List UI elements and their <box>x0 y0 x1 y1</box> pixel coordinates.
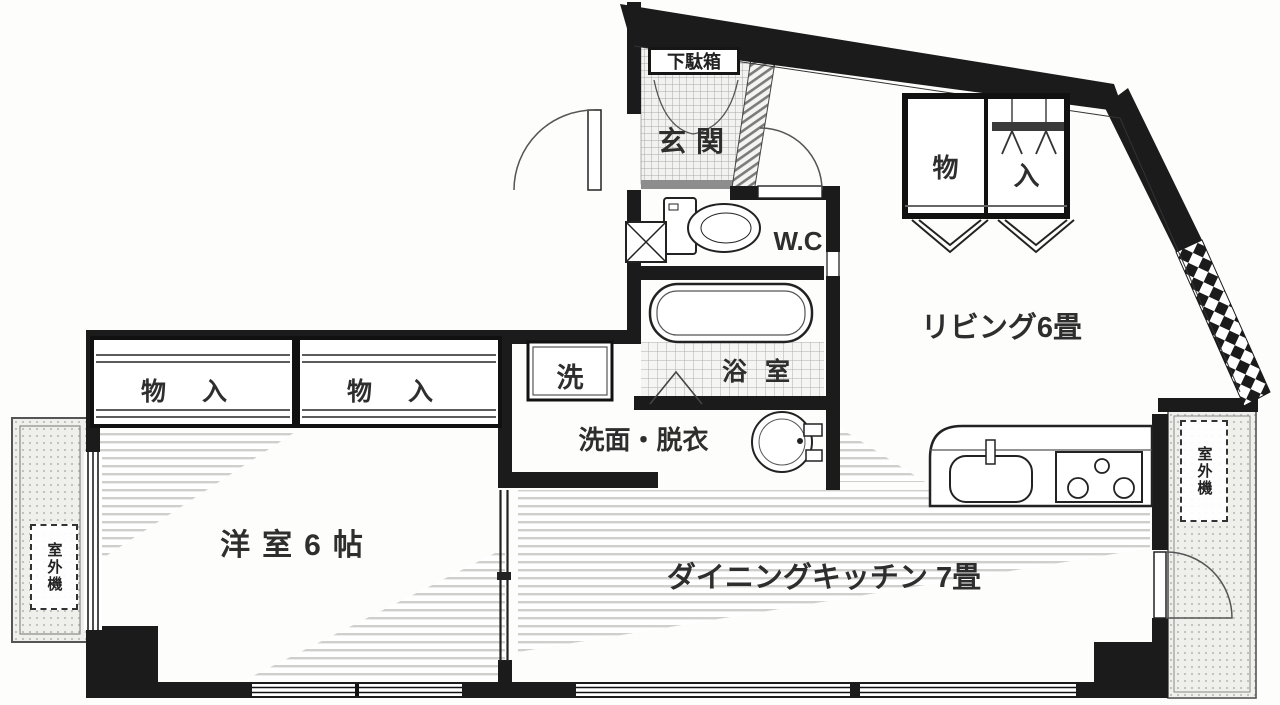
outdoor-unit-right-label: 室外機 <box>1180 420 1228 522</box>
window-dk-south-left <box>576 684 850 696</box>
bedroom-label: 洋室6帖 <box>170 520 425 564</box>
bedroom-shading-bottom <box>245 548 505 680</box>
hall-living-door <box>758 128 822 198</box>
wall-block-bottom-right <box>1094 642 1168 686</box>
wall-dk-east-lower <box>1152 618 1168 644</box>
wall-right-diagonal-solid <box>1104 88 1202 252</box>
folding-door-marks <box>912 220 1074 252</box>
wall-block-bottom-left <box>86 626 158 686</box>
window-bedroom-west <box>84 452 102 630</box>
genkan-step <box>641 180 736 189</box>
toilet-icon <box>664 198 760 254</box>
bedroom-closet-a-label: 物入 <box>92 372 294 408</box>
wall-living-west-lower <box>826 276 840 490</box>
dining-kitchen-label: ダイニングキッチン 7畳 <box>634 554 1014 596</box>
floor-plan: 下駄箱 玄関 W.C 浴室 洗 洗面・脱衣 リビング6畳 物入 物入 物 入 洋… <box>0 0 1280 705</box>
outdoor-unit-left-label: 室外機 <box>30 524 78 610</box>
living-shading <box>840 428 925 482</box>
bathtub-icon <box>650 284 812 342</box>
window-dk-south-right <box>860 684 1076 696</box>
window-bedroom-south <box>252 684 462 696</box>
wall-dk-east-upper <box>1152 414 1168 550</box>
floor-plan-drawing <box>0 0 1280 705</box>
washbasin-icon <box>752 412 822 472</box>
living-closet-left-char: 物 <box>905 148 986 185</box>
wall-wc-bath-divider <box>641 266 824 280</box>
wall-genkan-left <box>627 2 641 114</box>
kitchen-stove-icon <box>1056 452 1142 502</box>
wall-right-inner-face <box>1120 118 1240 392</box>
genkan-label: 玄関 <box>646 120 746 160</box>
living-closet-right-char: 入 <box>986 156 1067 193</box>
washing-machine-label: 洗 <box>528 356 612 395</box>
shoe-cabinet-label: 下駄箱 <box>648 47 740 75</box>
kitchen-counter <box>930 426 1152 506</box>
wall-right-diagonal-checker <box>1176 240 1270 406</box>
pipe-space-icon <box>626 222 666 262</box>
wc-label: W.C <box>762 226 834 257</box>
entry-door <box>514 110 601 190</box>
bath-label: 浴室 <box>706 352 824 388</box>
washroom-label: 洗面・脱衣 <box>536 420 751 457</box>
wall-washroom-south <box>498 472 658 488</box>
living-label: リビング6畳 <box>884 304 1119 346</box>
wall-bath-south <box>634 396 826 410</box>
bedroom-closet-b-label: 物入 <box>298 372 500 408</box>
